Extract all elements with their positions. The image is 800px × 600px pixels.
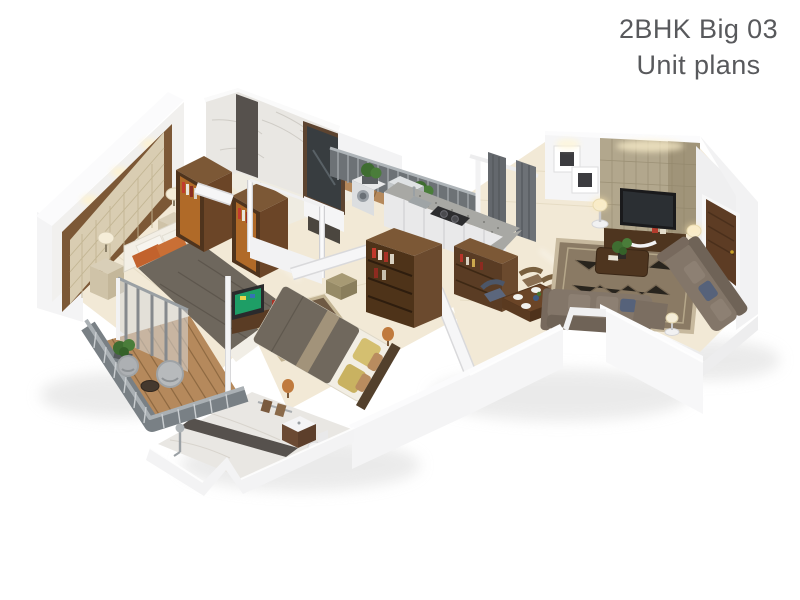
wardrobe-1 [176,156,232,252]
plan-title: 2BHK Big 03 Unit plans [619,12,778,83]
accent-cove-light [616,140,684,152]
floorplan-render [0,0,800,600]
door-handle [730,250,734,254]
plan-title-line1: 2BHK Big 03 [619,12,778,48]
table-lamp [98,232,114,244]
bedroom2-wardrobe [366,228,442,328]
shower-dark-marble-strip [236,94,258,178]
egg-chair-1 [157,361,183,387]
living-tv [620,188,676,230]
egg-chair-2 [118,356,138,376]
plan-title-line2: Unit plans [619,48,778,84]
balcony-table [141,381,159,392]
wall-frame-2 [572,167,598,193]
frame-spotlight [556,139,580,149]
floorplan-image: 2BHK Big 03 Unit plans [0,0,800,600]
navy-cushion [620,298,637,312]
